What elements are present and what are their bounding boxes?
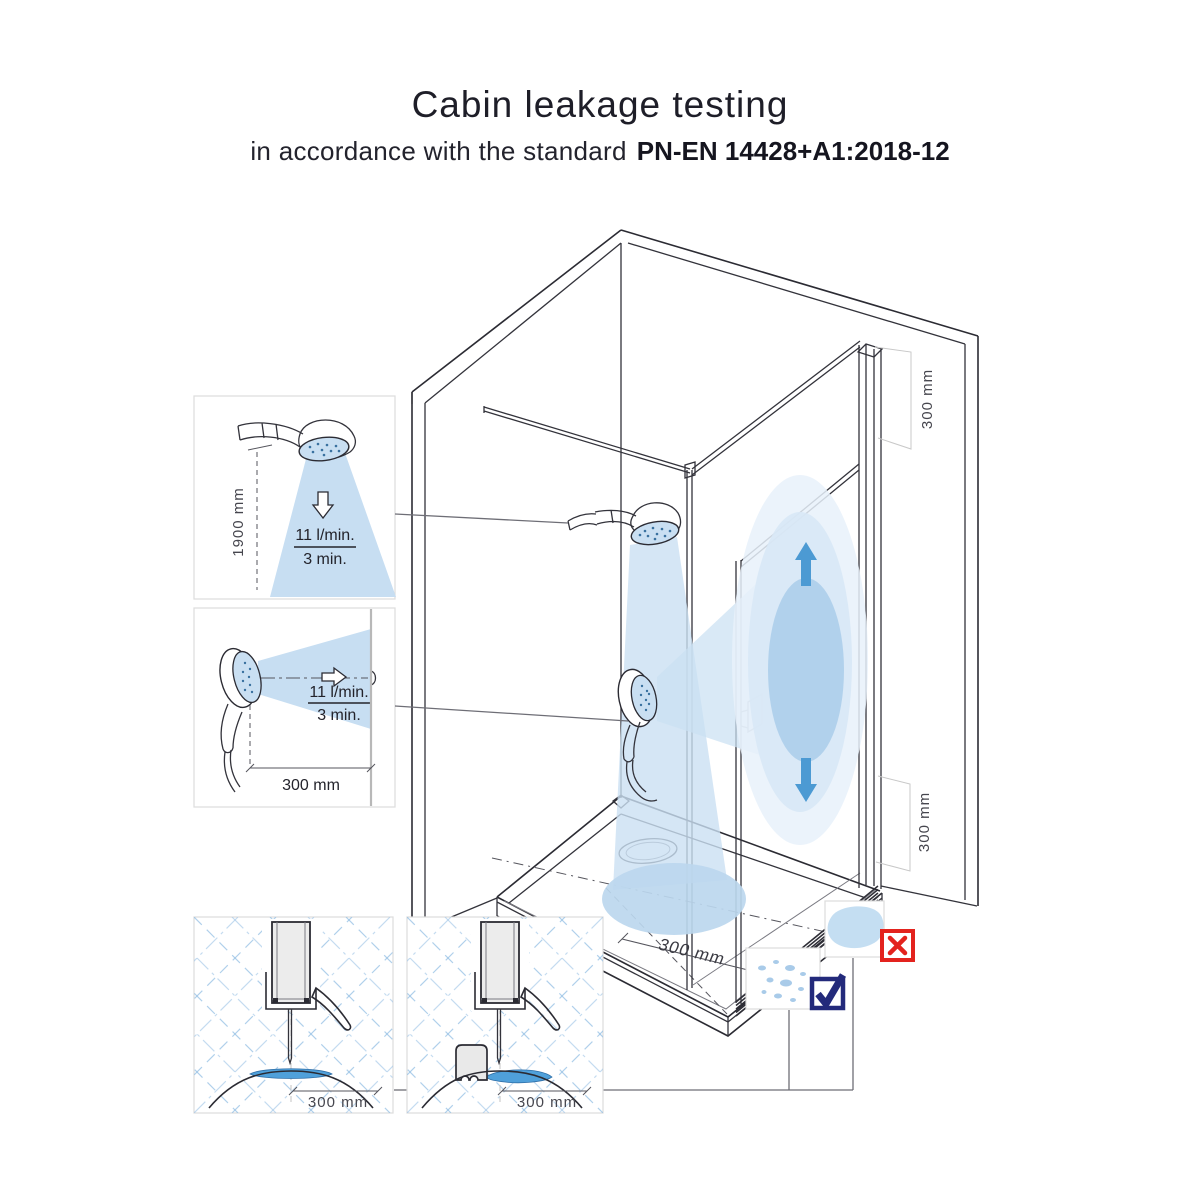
distance-label: 300 mm [282,777,340,794]
water-puddle-inside [602,863,746,935]
leader-top-inset [395,514,568,523]
handheld-shower-top-icon [568,503,681,548]
flow-rate-label: 11 l/min. [295,527,354,544]
diagram-canvas: 300 mm [0,0,1200,1200]
flow-rate-fraction: 11 l/min. 3 min. [294,527,356,568]
infographic-page: Cabin leakage testing in accordance with… [0,0,1200,1200]
top-gap-label: 300 mm [919,369,936,429]
bottom-gap-label: 300 mm [916,792,933,852]
fail-x-icon [882,931,913,960]
duration-label: 3 min. [303,551,347,568]
dim-top-right: 300 mm [875,347,936,449]
leader-mid-inset [395,706,628,721]
water-puddle-outside [828,906,884,948]
height-label: 1900 mm [230,487,247,557]
spray-impact-ellipse [768,578,844,762]
dim-bottom-right: 300 mm [876,776,933,871]
pass-check-icon [812,975,843,1008]
flow-rate-label: 11 l/min. [309,684,368,701]
distance-label: 300 mm [308,1094,368,1111]
inset-vertical-spray: 1900 mm 11 l/min. 3 min. [194,396,396,599]
duration-label: 3 min. [317,707,361,724]
support-bar [484,406,690,473]
drips-panel [746,948,820,1009]
distance-label: 300 mm [517,1094,577,1111]
left-wall [412,230,621,934]
dim-tray: 300 mm [618,933,758,975]
inset-horizontal-spray: 11 l/min. 3 min. 300 mm [194,608,395,807]
